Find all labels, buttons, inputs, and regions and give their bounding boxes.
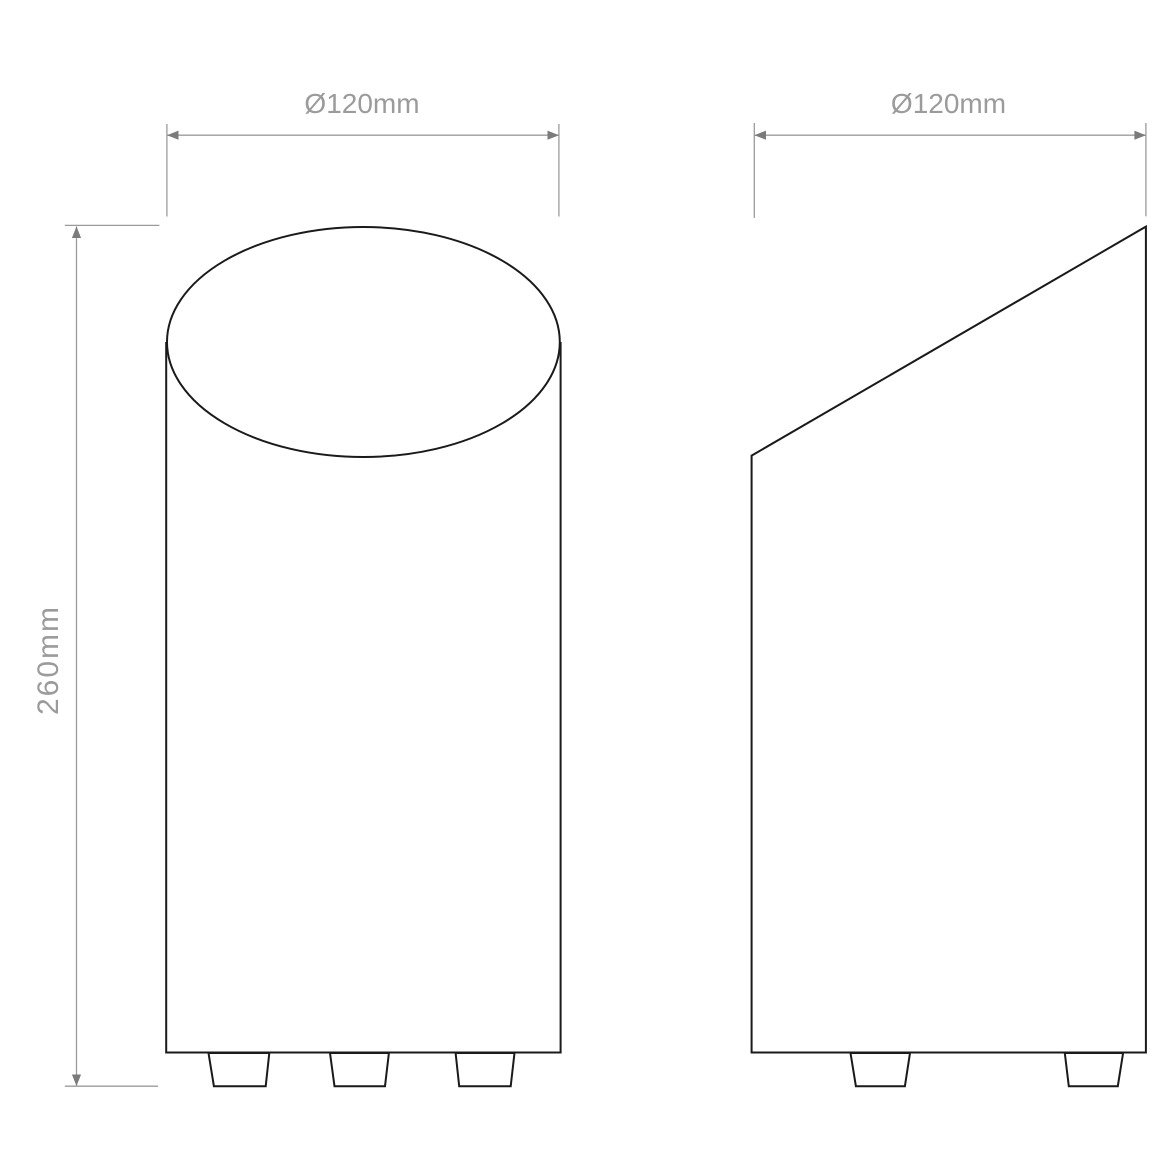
svg-text:260mm: 260mm (32, 605, 65, 715)
svg-text:Ø120mm: Ø120mm (304, 88, 419, 119)
svg-text:Ø120mm: Ø120mm (891, 88, 1006, 119)
